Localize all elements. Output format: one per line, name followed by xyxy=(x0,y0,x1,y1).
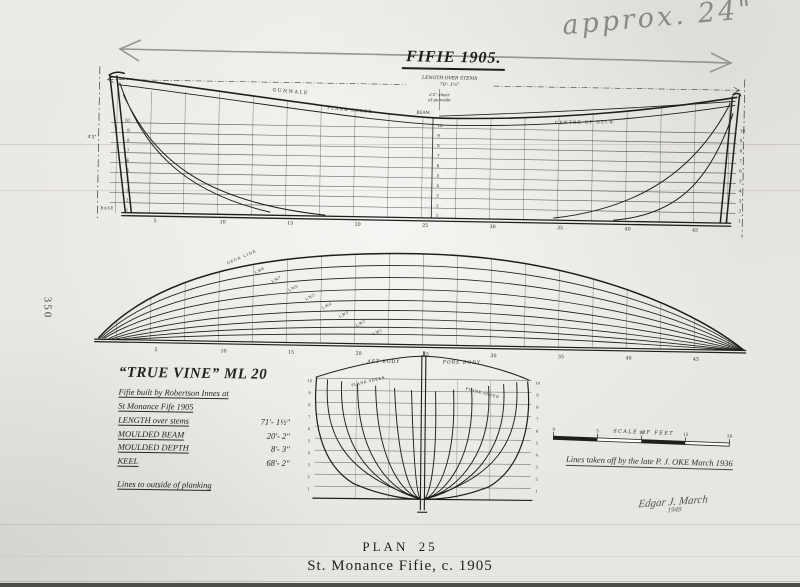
svg-text:4: 4 xyxy=(126,178,129,183)
svg-text:5: 5 xyxy=(536,440,539,445)
sheer-height-arch xyxy=(316,355,530,380)
planking-note: Lines to outside of planking xyxy=(117,478,212,490)
vessel-name: “TRUE VINE” ML 20 xyxy=(119,365,309,385)
svg-text:2: 2 xyxy=(436,203,439,208)
svg-text:5: 5 xyxy=(596,428,599,433)
svg-text:10: 10 xyxy=(125,118,131,123)
fore-buttock-lines xyxy=(553,100,733,222)
stem-post xyxy=(720,93,740,223)
svg-text:4: 4 xyxy=(436,183,439,188)
svg-text:8: 8 xyxy=(739,148,742,153)
svg-text:9: 9 xyxy=(536,392,539,397)
svg-text:10: 10 xyxy=(740,128,746,133)
spec-label: LENGTH over stems xyxy=(118,415,189,427)
svg-text:20: 20 xyxy=(355,222,361,228)
spec-label: KEEL xyxy=(117,455,138,466)
aft-perpendicular xyxy=(97,66,100,218)
spec-value: 20'- 2" xyxy=(267,430,308,442)
spec-row: LENGTH over stems 71'- 1½" xyxy=(118,415,308,429)
svg-text:7: 7 xyxy=(536,416,539,421)
plank-sheer-label: PLANK SHEER xyxy=(327,105,373,114)
svg-text:L.W.4: L.W.4 xyxy=(321,302,332,310)
length-value: 70'- 1½" xyxy=(440,81,460,88)
svg-text:L.W.2: L.W.2 xyxy=(355,319,366,327)
svg-text:1: 1 xyxy=(307,486,309,491)
svg-text:30: 30 xyxy=(490,224,496,230)
svg-text:6: 6 xyxy=(739,168,742,173)
body-base-line xyxy=(312,498,532,500)
svg-text:5: 5 xyxy=(154,218,157,224)
svg-text:2: 2 xyxy=(535,476,538,481)
svg-text:40: 40 xyxy=(625,355,631,361)
aft-body-label: AFT BODY xyxy=(366,359,400,365)
margin-dim-label: 4'5" xyxy=(87,135,97,140)
svg-text:35: 35 xyxy=(557,225,563,231)
svg-text:0: 0 xyxy=(552,427,555,432)
svg-text:2: 2 xyxy=(307,474,310,479)
caption-plan-number: PLAN 25 xyxy=(0,539,800,555)
svg-text:15: 15 xyxy=(683,432,689,437)
body-numbers-right: 10987654321 xyxy=(534,380,541,493)
svg-text:7: 7 xyxy=(127,148,130,153)
svg-text:9: 9 xyxy=(127,128,130,133)
svg-text:L.W.3: L.W.3 xyxy=(338,310,349,318)
svg-text:1: 1 xyxy=(126,208,129,213)
svg-text:40: 40 xyxy=(625,226,631,232)
centreline-keel xyxy=(417,351,429,512)
plank-sheer-label-right: PLANK SHEER xyxy=(465,387,499,400)
centre-of-deck-line xyxy=(439,96,735,121)
svg-text:6: 6 xyxy=(536,428,539,433)
title-block: “TRUE VINE” ML 20 Fifie built by Roberts… xyxy=(117,365,309,492)
scale-tick-numbers: 05101520 xyxy=(552,427,732,439)
svg-text:15: 15 xyxy=(287,221,293,227)
svg-text:L.W.5: L.W.5 xyxy=(305,293,316,301)
fore-perpendicular xyxy=(742,79,745,237)
pencil-arrowhead-left xyxy=(120,40,141,61)
waterline-numbers-right: 10987654321 xyxy=(738,128,745,223)
gunwale-line xyxy=(109,76,738,123)
svg-text:7: 7 xyxy=(437,153,440,158)
svg-text:25: 25 xyxy=(422,223,428,229)
length-label: LENGTH OVER STEMS xyxy=(421,75,477,82)
spec-label: MOULDED BEAM xyxy=(118,428,184,440)
scan-bottom-shadow xyxy=(0,583,800,587)
waterline-numbers-mid: 10987654321 xyxy=(436,123,443,218)
spec-label: MOULDED DEPTH xyxy=(118,442,189,454)
svg-text:3: 3 xyxy=(308,462,311,467)
svg-text:10: 10 xyxy=(220,348,226,354)
builder-line-1: Fifie built by Robertson Innes at xyxy=(118,387,228,400)
svg-text:3: 3 xyxy=(536,464,539,469)
svg-text:10: 10 xyxy=(220,219,226,225)
svg-text:20: 20 xyxy=(727,433,733,438)
svg-text:5: 5 xyxy=(126,168,129,173)
centre-of-deck-label: CENTRE OF DECK xyxy=(555,120,615,126)
svg-text:1: 1 xyxy=(535,488,537,493)
svg-text:6: 6 xyxy=(308,426,311,431)
spec-row: MOULDED BEAM 20'- 2" xyxy=(118,428,308,442)
body-plan: AFT BODY FORE BODY PLANK SHEER PLANK SHE… xyxy=(298,346,545,521)
svg-text:7: 7 xyxy=(308,414,311,419)
svg-text:9: 9 xyxy=(740,138,743,143)
beam-label: BEAM xyxy=(416,110,430,115)
svg-text:1: 1 xyxy=(436,213,439,218)
svg-text:5: 5 xyxy=(308,438,311,443)
svg-text:9: 9 xyxy=(437,133,440,138)
scan-edge-line xyxy=(0,581,800,582)
svg-text:15: 15 xyxy=(288,350,294,356)
svg-text:4: 4 xyxy=(308,450,311,455)
svg-text:5: 5 xyxy=(436,173,439,178)
svg-text:10: 10 xyxy=(639,430,645,435)
svg-text:8: 8 xyxy=(308,402,311,407)
svg-text:45: 45 xyxy=(693,357,699,363)
caption: PLAN 25 St. Monance Fifie, c. 1905 xyxy=(0,539,800,575)
deck-line-label: DECK LINE xyxy=(226,248,257,265)
svg-text:6: 6 xyxy=(127,158,130,163)
fore-body-label: FORE BODY xyxy=(442,359,481,365)
svg-text:45: 45 xyxy=(692,228,698,234)
sheer-plan: LENGTH OVER STEMS 70'- 1½" 2'2" sheer of… xyxy=(85,60,758,252)
svg-text:L.W.6: L.W.6 xyxy=(288,284,299,292)
svg-text:8: 8 xyxy=(437,143,440,148)
base-label: BASE xyxy=(100,205,114,210)
spec-value: 8'- 3" xyxy=(271,444,308,456)
svg-text:8: 8 xyxy=(536,404,539,409)
svg-text:3: 3 xyxy=(436,193,439,198)
svg-text:7: 7 xyxy=(739,158,742,163)
spec-value: 71'- 1½" xyxy=(261,417,309,429)
waterlines xyxy=(110,122,737,213)
signature: Edgar J. March 1949 xyxy=(637,493,708,516)
svg-text:5: 5 xyxy=(154,347,157,353)
sheer-note-2: of gunwale xyxy=(428,97,451,102)
svg-text:4: 4 xyxy=(739,188,742,193)
spec-row: MOULDED DEPTH 8'- 3" xyxy=(118,442,308,456)
builder-line-2: St Monance Fife 1905 xyxy=(118,401,193,413)
svg-text:9: 9 xyxy=(308,390,311,395)
svg-text:35: 35 xyxy=(558,354,564,360)
gunwale-label: GUNWALE xyxy=(272,87,309,96)
svg-text:3: 3 xyxy=(739,198,742,203)
caption-vessel-title: St. Monance Fifie, c. 1905 xyxy=(0,558,800,575)
svg-text:L.W.1: L.W.1 xyxy=(372,328,383,336)
svg-text:4: 4 xyxy=(536,452,539,457)
svg-text:6: 6 xyxy=(437,163,440,168)
scanned-plan-sheet: approx. 24" FIFIE 1905. xyxy=(0,0,800,587)
svg-text:2: 2 xyxy=(126,198,129,203)
svg-text:10: 10 xyxy=(535,380,540,385)
plank-sheer-label-left: PLANK SHEER xyxy=(351,376,386,388)
svg-text:2: 2 xyxy=(738,208,741,213)
fold-crease xyxy=(0,524,800,525)
spec-row: KEEL 68'- 2" xyxy=(117,455,307,469)
spec-value: 68'- 2" xyxy=(266,457,307,469)
svg-text:10: 10 xyxy=(437,123,443,128)
svg-text:8: 8 xyxy=(127,138,130,143)
svg-text:5: 5 xyxy=(739,178,742,183)
page-number: 350 xyxy=(41,297,53,320)
svg-text:3: 3 xyxy=(126,188,129,193)
svg-text:1: 1 xyxy=(738,218,741,223)
